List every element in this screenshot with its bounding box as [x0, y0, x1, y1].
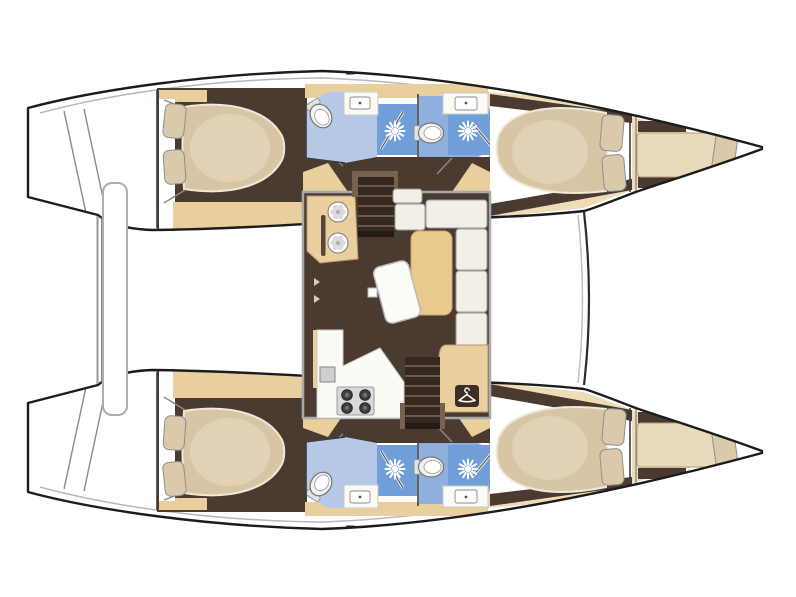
bridgedeck-edge — [584, 212, 589, 385]
settee-cushion — [456, 229, 487, 270]
basin-drain — [359, 102, 362, 105]
galley-sink-basin — [328, 202, 348, 222]
settee-cushion — [426, 200, 487, 228]
catamaran-floor-plan — [0, 0, 796, 597]
stove-burner — [342, 390, 353, 401]
bridgedeck-edge-shadow — [578, 215, 583, 383]
settee-cushion — [393, 189, 422, 203]
aft-crossbeam-bar — [103, 183, 127, 415]
basin-drain-2 — [465, 102, 468, 105]
stair-lip — [405, 423, 440, 429]
stove-burner — [360, 403, 371, 414]
shower-stall-2 — [448, 112, 492, 155]
forepeak-berth — [637, 133, 721, 177]
galley-sink-basin — [328, 233, 348, 253]
toilet-2 — [414, 123, 444, 143]
saloon — [303, 171, 490, 429]
settee-cushion — [456, 313, 487, 347]
mattress-highlight — [190, 114, 270, 182]
table-leg — [368, 288, 377, 297]
aft-bed-base-foot — [159, 202, 173, 230]
pillow — [599, 114, 624, 152]
pillow — [163, 149, 186, 184]
mattress-highlight — [512, 120, 588, 184]
settee-cushion — [395, 204, 425, 230]
floor-plan-canvas — [0, 0, 796, 597]
stair-lip — [358, 231, 394, 237]
galley-small-sink — [320, 367, 335, 382]
settee-cushion — [456, 271, 487, 312]
pillow — [162, 103, 186, 139]
cabinet-handle — [321, 215, 326, 256]
stove-burner — [360, 390, 371, 401]
pillow — [601, 154, 626, 192]
stove-burner — [342, 403, 353, 414]
companionway-stairs-starboard — [405, 357, 440, 429]
